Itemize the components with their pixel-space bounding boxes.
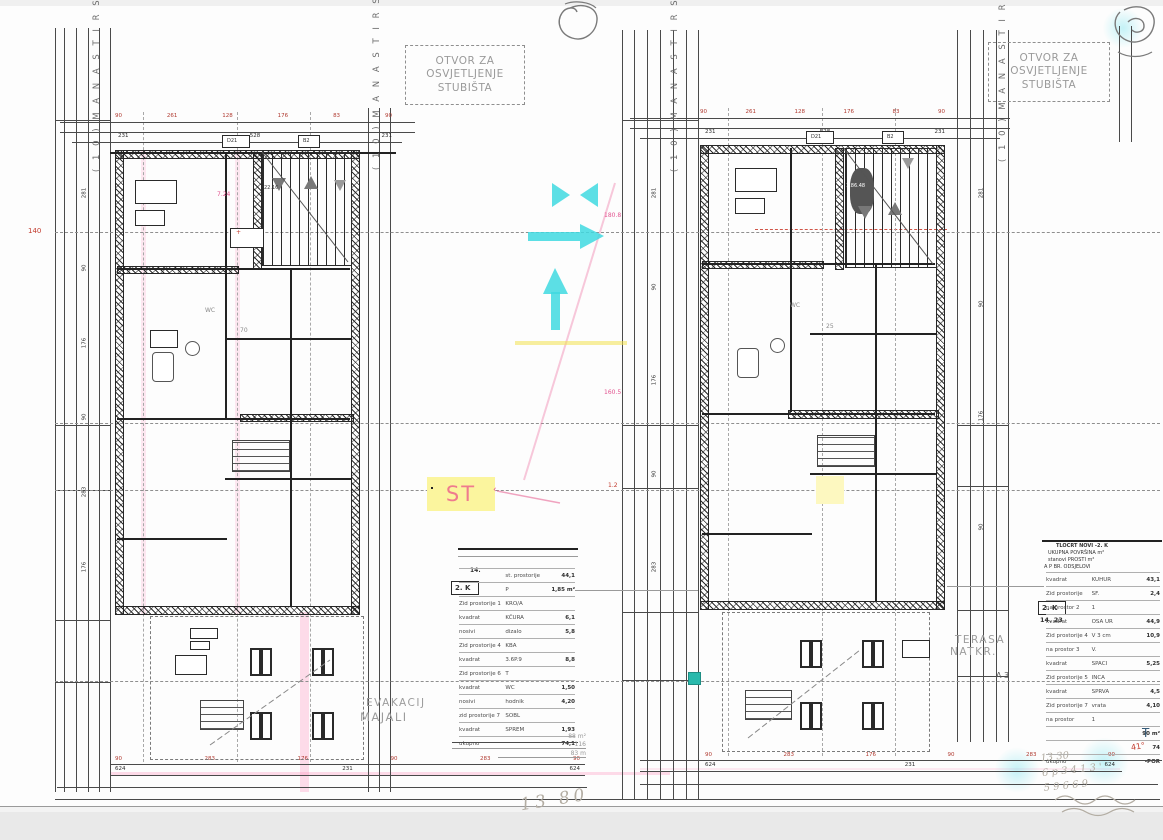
terrace-steps xyxy=(745,690,792,720)
schedule-row: st. prostorije 44,1 xyxy=(459,568,575,582)
dimension-value: 90 xyxy=(115,757,122,763)
partition-wall xyxy=(875,265,877,601)
dimension-value: 90 xyxy=(978,523,984,530)
secondary-steps xyxy=(817,435,875,467)
dim-line xyxy=(630,118,1010,119)
terrace-tag-box xyxy=(190,628,218,639)
row-value: 5,25 xyxy=(1131,661,1160,667)
survey-cross: + xyxy=(236,230,241,236)
partition-wall xyxy=(225,338,352,340)
row-label: zid prostorije 7 xyxy=(459,713,505,719)
wall-interior xyxy=(835,148,844,270)
row-label: na prostor xyxy=(1046,717,1092,723)
schedule-row: na prostor 1 xyxy=(1046,712,1160,726)
dimension-value: 90 xyxy=(81,414,87,421)
evacuation-label: EVAKACIJ xyxy=(366,697,426,709)
dim-tie xyxy=(55,620,110,621)
schedule-row: kvadrat SPRVA 4,5 xyxy=(1046,684,1160,698)
dimension-string: 231528231 xyxy=(118,134,392,140)
dimension-value: 624 xyxy=(115,767,126,773)
pencil-area-notes: 88 m²11683 m xyxy=(538,733,586,758)
street-label: ( 1 0 ) M A N A S T I R S K A xyxy=(92,32,102,172)
row-label: kvadrat xyxy=(459,727,505,733)
partition-wall xyxy=(117,418,350,420)
dim-line xyxy=(110,775,585,776)
street-label: ( 1 0 ) M A N A S T I R S K A xyxy=(372,30,382,170)
column xyxy=(811,640,822,668)
terrace-label: NATKR. xyxy=(950,646,997,658)
row-label: kvadrat xyxy=(459,615,505,621)
dim-line xyxy=(660,30,661,800)
row-label: kvadrat xyxy=(459,685,505,691)
dimension-value: 231 xyxy=(905,763,916,769)
dim-line xyxy=(55,799,1160,800)
wall-interior xyxy=(253,152,262,270)
room-number: 70 xyxy=(240,328,248,334)
axis-line xyxy=(55,490,1160,491)
dimension-value: 283 xyxy=(480,757,491,763)
dimension-value: 231 xyxy=(342,767,353,773)
skylight-note-box: OTVOR ZA OSVJETLJENJE STUBIŠTA xyxy=(988,42,1110,102)
dimension-value: 261 xyxy=(746,110,757,116)
dimension-value: 90 xyxy=(651,283,657,290)
dim-line xyxy=(55,28,56,792)
schedule-row: nosivi dizalo 5,8 xyxy=(459,624,575,638)
sketch-circle xyxy=(559,6,597,39)
st-label: ST xyxy=(446,482,476,506)
row-name: KUHUR xyxy=(1092,577,1132,583)
axis-line xyxy=(55,232,1160,233)
schedule-row: nosivi hodnik 4,20 xyxy=(459,694,575,708)
row-label: kvadrat xyxy=(1046,577,1092,583)
column xyxy=(261,648,272,676)
schedule-row: kvadrat KUHUR 43,1 xyxy=(1046,572,1160,586)
dimension-value: 90 xyxy=(978,301,984,308)
column xyxy=(323,648,334,676)
row-name: SPACI xyxy=(1092,661,1132,667)
row-value: 4,10 xyxy=(1131,703,1160,709)
stair-tag: 22.16 xyxy=(264,186,278,191)
row-name: SF. xyxy=(1092,591,1132,597)
dim-line xyxy=(110,764,585,765)
basin-fixture xyxy=(770,338,785,353)
dimension-value: 83 xyxy=(333,114,340,120)
dim-line xyxy=(0,806,1163,807)
row-name: KBA xyxy=(505,643,546,649)
dim-line xyxy=(368,108,369,792)
dimension-value: 283 xyxy=(651,562,657,573)
door-tag-box: D21 xyxy=(222,135,250,148)
dim-tie xyxy=(622,612,698,613)
dim-line xyxy=(1008,30,1009,742)
floor-plan-sheet: 902611281768390 231528231 90261128176839… xyxy=(0,0,1163,840)
wall-exterior xyxy=(700,145,709,610)
note-rule xyxy=(498,757,586,758)
row-label: kvadrat xyxy=(459,657,505,663)
schedule-row: kvadrat 3.6P.9 8,8 xyxy=(459,652,575,666)
partition-wall xyxy=(290,270,292,606)
row-name: 1 xyxy=(1092,605,1132,611)
schedule-row: Zid prostorije 5 INCA xyxy=(1046,670,1160,684)
room-label-wc: WC xyxy=(205,308,215,314)
row-name: INCA xyxy=(1092,675,1132,681)
stair-direction-arrow xyxy=(902,158,914,169)
stair-direction-arrow xyxy=(888,202,902,215)
dimension-value: 176 xyxy=(81,337,87,348)
table-header: UKUPNA POVRŠINA m² xyxy=(1048,551,1104,556)
basin-fixture xyxy=(185,341,200,356)
column xyxy=(323,712,334,740)
dimension-value: 231 xyxy=(935,130,946,136)
schedule-row: kvadrat KČURA 6,1 xyxy=(459,610,575,624)
partition-wall xyxy=(810,473,937,475)
partition-wall xyxy=(810,333,937,335)
schedule-row: kvadrat WC 1,50 xyxy=(459,680,575,694)
row-value: 5,8 xyxy=(546,629,575,635)
row-label: Zid prostorije xyxy=(1046,591,1092,597)
column xyxy=(312,648,323,676)
dim-line xyxy=(622,30,623,800)
column xyxy=(261,712,272,740)
dim-line xyxy=(57,787,587,788)
skylight-note-line: OTVOR ZA xyxy=(436,55,495,69)
door-tag-box: D21 xyxy=(806,131,834,144)
toilet-fixture xyxy=(737,348,759,378)
dimension-value: 176 xyxy=(978,410,984,421)
dimension-value: 283 xyxy=(784,753,795,759)
skylight-note-line: OSVJETLJENJE xyxy=(426,68,503,82)
dim-line xyxy=(379,108,380,792)
dimension-string-vertical: 2819017690283176 xyxy=(78,190,90,570)
wall-exterior xyxy=(936,145,945,610)
row-label: na prostor 3 xyxy=(1046,647,1092,653)
dimension-value: 176 xyxy=(278,114,289,120)
table-header: TLOCRT NOVI -2. K xyxy=(1056,544,1108,549)
table-rule xyxy=(458,556,578,557)
row-label: nosivi xyxy=(459,699,505,705)
row-value: 1,93 xyxy=(546,727,575,733)
sink-fixture xyxy=(150,330,178,348)
partition-wall xyxy=(790,148,792,412)
pink-pencil-line xyxy=(524,183,615,480)
dimension-value: 231 xyxy=(118,134,129,140)
row-value: 10,9 xyxy=(1131,633,1160,639)
schedule-row: Zid prostorije 6 T xyxy=(459,666,575,680)
dim-note-pink: 160.5 xyxy=(604,390,621,396)
skylight-note-line: OSVJETLJENJE xyxy=(1010,65,1087,79)
dim-line xyxy=(60,132,415,133)
dimension-value: 90 xyxy=(938,110,945,116)
skylight-note-line: OTVOR ZA xyxy=(1020,52,1079,66)
column xyxy=(862,640,873,668)
dimension-value: 281 xyxy=(978,188,984,199)
dimension-value: 83 xyxy=(893,110,900,116)
leader-line xyxy=(575,590,698,591)
row-label: Zid prostorije 4 xyxy=(459,643,505,649)
row-name: V. xyxy=(1092,647,1132,653)
dimension-value: 231 xyxy=(382,134,393,140)
skylight-note-line: STUBIŠTA xyxy=(438,82,493,96)
terrace-detail xyxy=(175,655,207,675)
door-tag: D21 xyxy=(227,139,237,144)
furniture-outline xyxy=(735,168,777,192)
row-label: Zid prostorije 5 xyxy=(1046,675,1092,681)
row-name: SPRVA xyxy=(1092,689,1132,695)
row-label: Zid prostorije 1 xyxy=(459,601,505,607)
stair-tag: 1.86.48 xyxy=(846,184,865,189)
schedule-row: kvadrat OSA UR 44,9 xyxy=(1046,614,1160,628)
dimension-string: 902611281768390 xyxy=(115,114,392,120)
row-name: OSA UR xyxy=(1092,619,1132,625)
partition-wall xyxy=(702,263,935,265)
door-tag: B2 xyxy=(303,139,310,144)
cyan-bowtie-arrow xyxy=(552,183,570,207)
column xyxy=(312,712,323,740)
dimension-value: 261 xyxy=(167,114,178,120)
column xyxy=(250,648,261,676)
column xyxy=(800,640,811,668)
schedule-row: Zid prostorije SF. 2,4 xyxy=(1046,586,1160,600)
partition-wall xyxy=(702,533,812,535)
row-value: 6,1 xyxy=(546,615,575,621)
axis-line xyxy=(55,423,1160,424)
area-schedule-left: st. prostorije 44,1 P 1,85 m² Zid prosto… xyxy=(459,568,575,750)
dimension-value: 176 xyxy=(844,110,855,116)
row-value: 2,4 xyxy=(1131,591,1160,597)
sketch-circle xyxy=(1118,52,1152,57)
dimension-value: 90 xyxy=(391,757,398,763)
row-name: T xyxy=(505,671,546,677)
row-value: 8,8 xyxy=(546,657,575,663)
street-label: ( 1 0 ) M A N A S T I R S K A xyxy=(670,32,680,172)
row-name: P xyxy=(505,587,546,593)
schedule-row: kvadrat SPACI 5,25 xyxy=(1046,656,1160,670)
row-value: 1,85 m² xyxy=(546,587,575,593)
dimension-value: 281 xyxy=(651,188,657,199)
terrace-steps xyxy=(200,700,244,730)
pink-leader-line xyxy=(497,491,560,503)
row-name: SPREM xyxy=(505,727,546,733)
partition-wall xyxy=(702,413,935,415)
row-label: kvadrat xyxy=(1046,661,1092,667)
room-number: 25 xyxy=(826,324,834,330)
secondary-steps xyxy=(232,440,290,472)
teal-marker xyxy=(688,672,701,685)
row-label: Zid prostorije 6 xyxy=(459,671,505,677)
row-name: WC xyxy=(505,685,546,691)
schedule-row: Zid prostorije 4 V 3 cm 10,9 xyxy=(1046,628,1160,642)
corner-note-t: T xyxy=(1142,727,1149,739)
row-label: nosivi xyxy=(459,629,505,635)
dim-line xyxy=(1119,26,1120,142)
dim-note-pink: 1.2 xyxy=(608,483,618,489)
stair-direction-arrow xyxy=(858,206,872,219)
column xyxy=(862,702,873,730)
dimension-value: 624 xyxy=(705,763,716,769)
dimension-value: 128 xyxy=(222,114,233,120)
dimension-string-vertical: 2819017690 xyxy=(975,190,987,530)
column xyxy=(873,702,884,730)
row-label: Zid prostorije 7 xyxy=(1046,703,1092,709)
leader-tick: ‹ xyxy=(493,486,497,495)
terrace-detail xyxy=(902,640,930,658)
dim-line xyxy=(60,122,415,123)
dim-line xyxy=(64,28,65,792)
dimension-string: 624231624 xyxy=(115,767,580,773)
table-header: stanovi PROSTI m² xyxy=(1048,558,1094,563)
cyan-up-arrow xyxy=(543,268,568,294)
dim-line xyxy=(1131,26,1132,142)
dimension-value: 624 xyxy=(570,767,581,773)
dimension-value: 90 xyxy=(651,470,657,477)
table-header: A P BR. ODSJELOVI xyxy=(1044,565,1090,570)
furniture-outline xyxy=(735,198,765,214)
table-rule xyxy=(458,548,578,550)
highlight-box xyxy=(816,476,844,504)
door-tag: D21 xyxy=(811,135,821,140)
row-value: 1,50 xyxy=(546,685,575,691)
skylight-note-line: STUBIŠTA xyxy=(1022,79,1077,93)
dim-line xyxy=(686,30,687,800)
dimension-value: 176 xyxy=(651,375,657,386)
cyan-up-arrow xyxy=(551,292,560,330)
level-marker: 140 xyxy=(28,228,41,235)
dimension-value: 176 xyxy=(866,753,877,759)
cyan-right-arrow xyxy=(580,224,604,249)
dim-note-pink: 7.24 xyxy=(217,192,230,198)
wall-exterior xyxy=(115,606,360,615)
dimension-value: 90 xyxy=(115,114,122,120)
stair-direction-arrow xyxy=(334,180,346,191)
scan-band-bottom xyxy=(0,812,1163,840)
cyan-bowtie-arrow xyxy=(580,183,598,207)
wall-exterior xyxy=(351,150,360,615)
skylight-note-box: OTVOR ZA OSVJETLJENJE STUBIŠTA xyxy=(405,45,525,105)
door-tag-box: B2 xyxy=(882,131,904,144)
terrace-tag-box xyxy=(190,641,210,650)
dimension-value: 128 xyxy=(795,110,806,116)
row-name: V 3 cm xyxy=(1092,633,1132,639)
wall-exterior xyxy=(115,150,124,615)
dim-tie xyxy=(622,488,698,489)
row-name: vrata xyxy=(1092,703,1132,709)
row-name: st. prostorije xyxy=(505,573,546,579)
schedule-row: na prostor 2 1 xyxy=(1046,600,1160,614)
dim-tie xyxy=(957,610,1008,611)
row-name: KČURA xyxy=(505,615,546,621)
row-value: 4,20 xyxy=(546,699,575,705)
schedule-row: Zid prostorije 1 KRO/A xyxy=(459,596,575,610)
dimension-value: 231 xyxy=(705,130,716,136)
st-highlight: ST xyxy=(427,477,495,511)
row-name: SOBL xyxy=(505,713,546,719)
dimension-value: 90 xyxy=(705,753,712,759)
furniture-outline xyxy=(135,210,165,226)
schedule-row: Zid prostorije 7 vrata 4,10 xyxy=(1046,698,1160,712)
row-name: 3.6P.9 xyxy=(505,657,546,663)
column xyxy=(250,712,261,740)
partition-wall xyxy=(117,538,227,540)
room-label-wc: WC xyxy=(790,303,800,309)
dim-tie xyxy=(55,682,110,683)
row-label: Zid prostorije 4 xyxy=(1046,633,1092,639)
dimension-value: 90 xyxy=(948,753,955,759)
dimension-value: 528 xyxy=(250,134,261,140)
dimension-value: 176 xyxy=(81,562,87,573)
column xyxy=(873,640,884,668)
partition-wall xyxy=(225,478,352,480)
dimension-value: 281 xyxy=(81,188,87,199)
pencil-notes-right: 13 306 p 3 4 1 3 '5 9 6 6 9 xyxy=(1040,745,1104,796)
dimension-value: 90 xyxy=(81,264,87,271)
cyan-right-arrow xyxy=(528,232,580,241)
row-value: 4,5 xyxy=(1131,689,1160,695)
leader-line xyxy=(947,586,1044,587)
column xyxy=(811,702,822,730)
dimension-string: 902611281768390 xyxy=(700,110,945,116)
wall-exterior xyxy=(700,601,945,610)
evacuation-label: MAJALI xyxy=(360,710,408,724)
row-name: hodnik xyxy=(505,699,546,705)
row-name: 1 xyxy=(1092,717,1132,723)
door-tag: B2 xyxy=(887,135,894,140)
schedule-row: P 1,85 m² xyxy=(459,582,575,596)
row-name: dizalo xyxy=(505,629,546,635)
staircase xyxy=(262,152,352,266)
table-rule xyxy=(1042,540,1162,542)
pencil-note-line: 88 m² xyxy=(538,733,586,741)
schedule-row: na prostor 3 V. xyxy=(1046,642,1160,656)
st-dot xyxy=(431,487,433,489)
dim-line xyxy=(634,30,635,800)
partition-wall xyxy=(117,268,350,270)
dimension-value: 283 xyxy=(81,487,87,498)
dim-tie xyxy=(622,425,698,426)
row-label: kvadrat xyxy=(1046,619,1092,625)
furniture-outline xyxy=(135,180,177,204)
stair-direction-arrow xyxy=(304,176,318,189)
dim-line xyxy=(390,108,391,792)
terrace-label: TERASA xyxy=(955,634,1005,646)
axis-marker-3: Λ 3 xyxy=(996,672,1009,680)
dim-note-pink: 180.8 xyxy=(604,213,621,219)
column xyxy=(800,702,811,730)
dimension-value: 90 xyxy=(700,110,707,116)
scan-band-top xyxy=(0,0,1163,6)
note-rule xyxy=(498,748,586,749)
row-name: KRO/A xyxy=(505,601,546,607)
dim-tie xyxy=(622,120,698,121)
row-value: 43,1 xyxy=(1131,577,1160,583)
dimension-string-vertical: 2819017690283 xyxy=(648,190,660,570)
row-value: 44,1 xyxy=(546,573,575,579)
row-label: kvadrat xyxy=(1046,689,1092,695)
pencil-squiggle xyxy=(1055,796,1135,804)
row-label: na prostor 2 xyxy=(1046,605,1092,611)
row-value: 44,9 xyxy=(1131,619,1160,625)
schedule-row: Zid prostorije 4 KBA xyxy=(459,638,575,652)
door-tag-box: B2 xyxy=(298,135,320,148)
schedule-row: zid prostorije 7 SOBL xyxy=(459,708,575,722)
toilet-fixture xyxy=(152,352,174,382)
dimension-value: 283 xyxy=(1026,753,1037,759)
terrace-outline xyxy=(722,612,930,752)
dimension-value: 90 xyxy=(385,114,392,120)
